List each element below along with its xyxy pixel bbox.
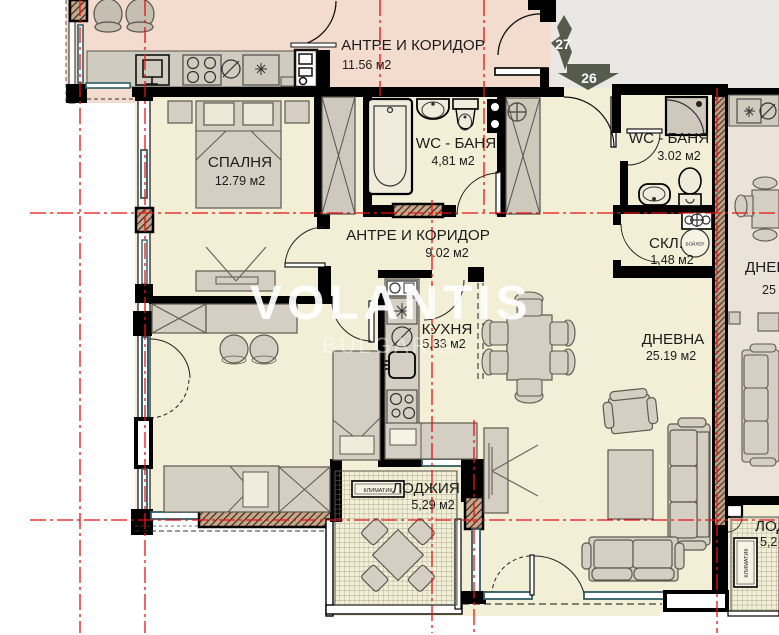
svg-text:25.19 м2: 25.19 м2 — [646, 349, 696, 363]
svg-text:КЛИМАТИК: КЛИМАТИК — [363, 488, 393, 494]
svg-text:1,48 м2: 1,48 м2 — [650, 253, 693, 267]
svg-text:ДНЕВНА: ДНЕВНА — [745, 259, 779, 276]
svg-text:27: 27 — [555, 36, 571, 52]
svg-text:VOLANTIS: VOLANTIS — [250, 277, 533, 330]
svg-text:ДНЕВНА: ДНЕВНА — [642, 331, 705, 348]
svg-text:АНТРЕ И КОРИДОР: АНТРЕ И КОРИДОР — [341, 37, 485, 54]
svg-text:3.02 м2: 3.02 м2 — [657, 149, 700, 163]
svg-text:СПАЛНЯ: СПАЛНЯ — [208, 154, 272, 171]
svg-text:26: 26 — [581, 70, 597, 86]
svg-text:9.02 м2: 9.02 м2 — [425, 246, 468, 260]
svg-text:5,29 м2: 5,29 м2 — [411, 498, 454, 512]
svg-text:WC - БАНЯ: WC - БАНЯ — [629, 130, 710, 147]
svg-text:WC - БАНЯ: WC - БАНЯ — [416, 135, 497, 152]
svg-text:СКЛ.: СКЛ. — [649, 235, 683, 252]
svg-text:4,81 м2: 4,81 м2 — [431, 154, 474, 168]
svg-text:25: 25 — [762, 283, 776, 297]
svg-text:5,2: 5,2 — [760, 535, 777, 549]
svg-text:ЛОДЖИЯ: ЛОДЖИЯ — [755, 518, 779, 535]
svg-text:АНТРЕ И КОРИДОР: АНТРЕ И КОРИДОР — [346, 227, 490, 244]
svg-text:BULGARIA: BULGARIA — [322, 333, 457, 358]
svg-text:БОЙЛЕР: БОЙЛЕР — [686, 240, 705, 247]
svg-text:11.56 м2: 11.56 м2 — [342, 58, 391, 72]
svg-text:КЛИМАТИК: КЛИМАТИК — [744, 548, 750, 578]
svg-text:ЛОДЖИЯ: ЛОДЖИЯ — [392, 480, 460, 497]
svg-text:12.79 м2: 12.79 м2 — [215, 174, 265, 188]
